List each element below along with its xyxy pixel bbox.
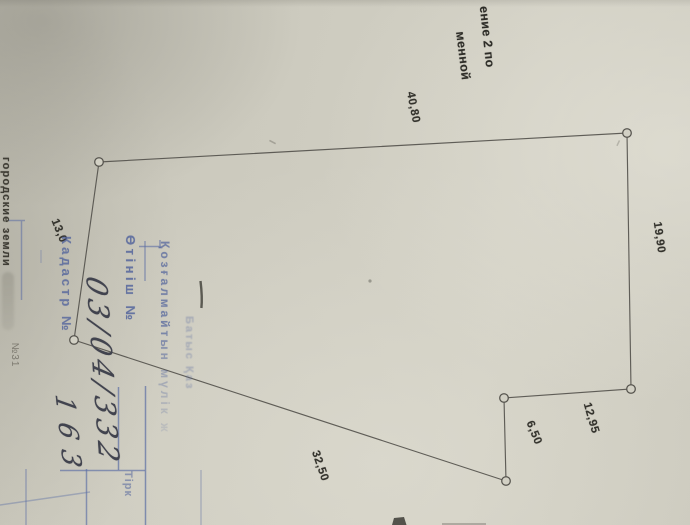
stamp-property-line: Қозғалмайтын мүлік ж	[154, 241, 172, 461]
vertex-marker	[627, 385, 636, 394]
vertex-marker	[502, 477, 511, 486]
vertex-marker	[95, 158, 104, 167]
vertex-marker	[623, 129, 632, 138]
paper-speck	[269, 140, 276, 145]
margin-land-category-label: городские земли	[0, 137, 12, 287]
ink-dot	[368, 279, 371, 282]
cut-off-text-mark	[392, 517, 407, 525]
margin-faded-text-smudge	[2, 272, 14, 330]
stamp-organization-text: Батыс Қаз	[177, 316, 195, 406]
scanned-cadastral-plan: ение 2 по менной 40,8019,9012,956,5032,5…	[0, 0, 690, 525]
stamp-application-label: Өтініш №	[120, 235, 138, 395]
paper-speck	[616, 140, 620, 146]
scan-blemishes	[201, 140, 621, 525]
pen-stroke-mark	[201, 281, 202, 308]
margin-parcel-number: №31	[6, 335, 20, 375]
stamp-cadastre-label: Кадастр №	[56, 236, 74, 396]
